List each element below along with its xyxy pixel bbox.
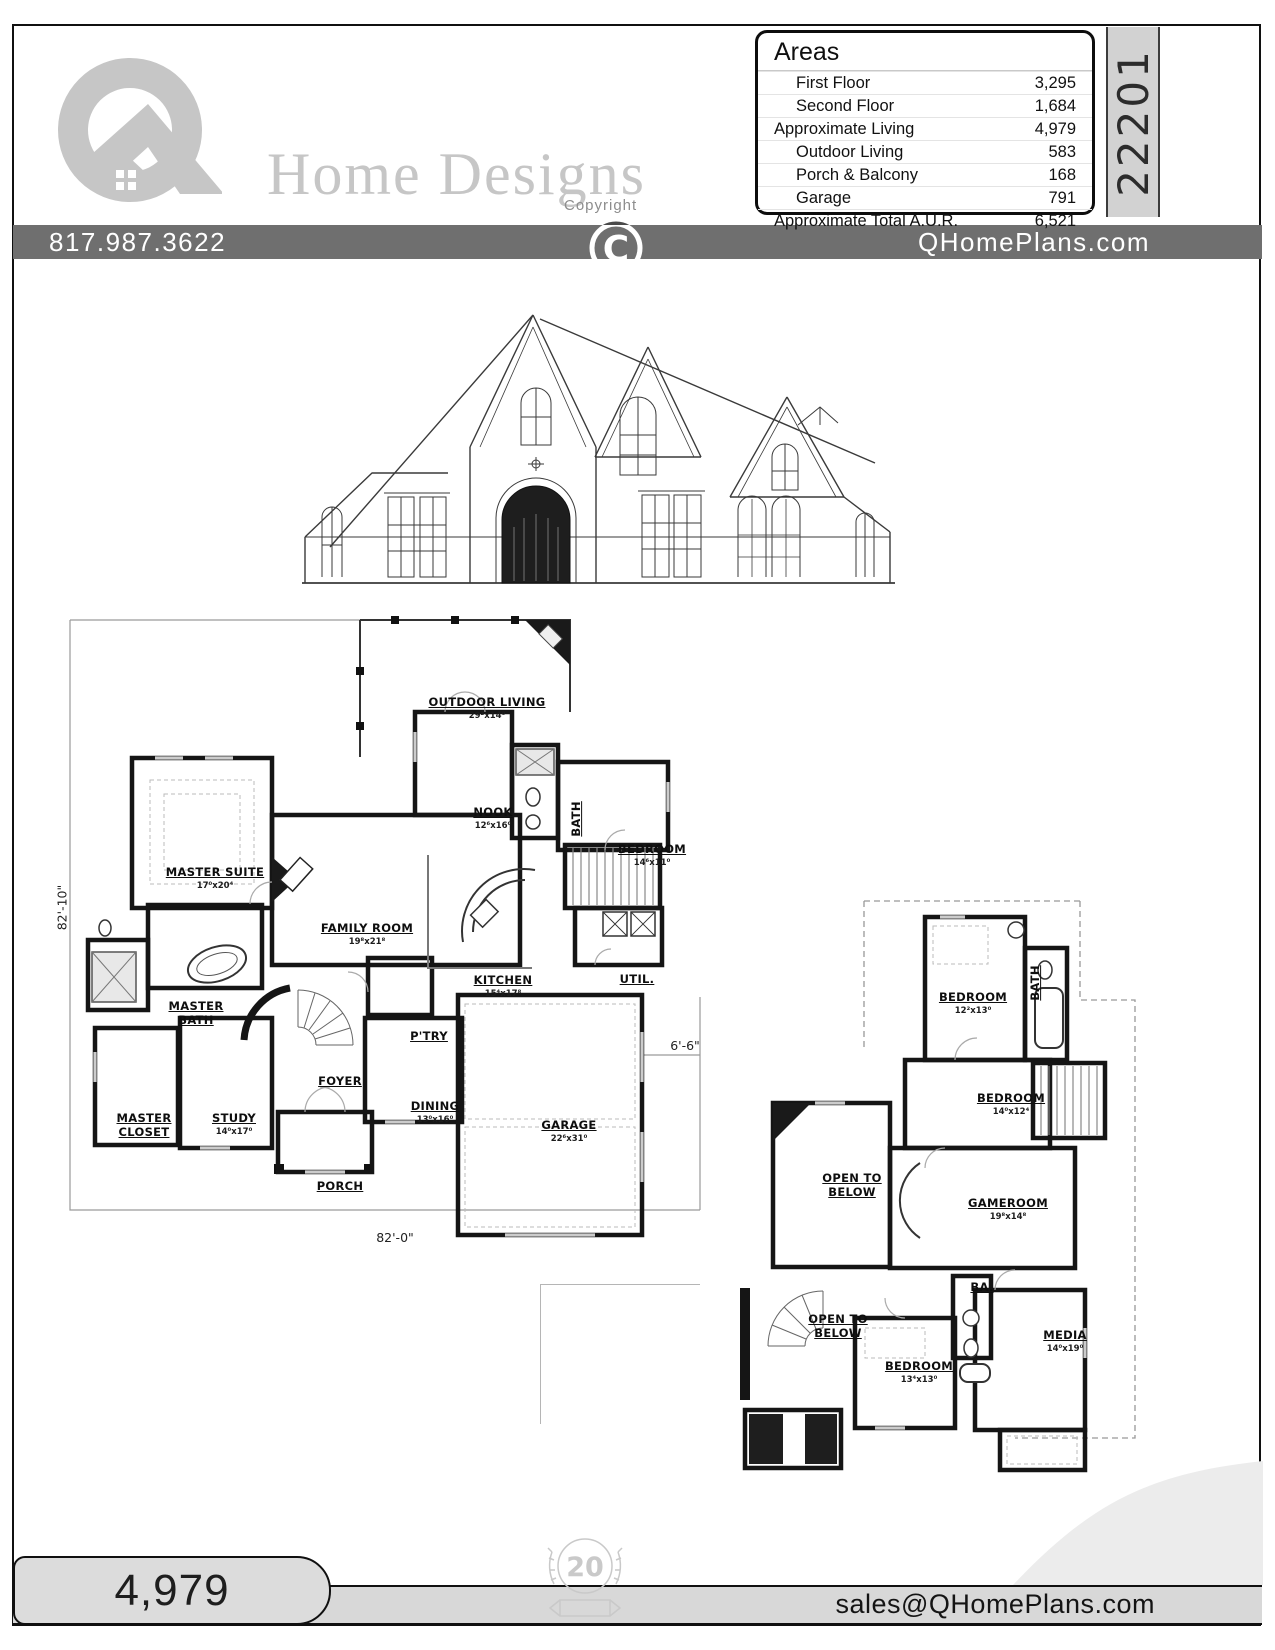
- row-label: Approximate Living: [774, 120, 914, 139]
- room-dimension: 29²x14⁰: [417, 711, 557, 721]
- second-floor-plan: [715, 848, 1175, 1496]
- room-label: BATH: [570, 794, 584, 844]
- row-label: Porch & Balcony: [774, 166, 918, 185]
- room-label: STUDY 14⁰x17⁰: [174, 1112, 294, 1137]
- room-label: OUTDOOR LIVING 29²x14⁰: [417, 696, 557, 721]
- room-label: FAMILY ROOM 19⁸x21⁸: [307, 922, 427, 947]
- room-dimension: 22⁶x31⁰: [509, 1134, 629, 1144]
- dimension-label-side: 6'-6": [650, 1038, 720, 1053]
- room-label: OPEN TO BELOW: [798, 1313, 878, 1341]
- anniversary-badge-icon: 20: [540, 1526, 630, 1634]
- badge-number: 20: [566, 1552, 604, 1583]
- row-label: First Floor: [774, 74, 870, 93]
- row-value: 583: [1048, 143, 1076, 162]
- room-label: MASTER SUITE 17⁰x20⁴: [155, 866, 275, 891]
- room-label: BEDROOM 13⁴x13⁰: [859, 1360, 979, 1385]
- room-dimension: 13⁰x16⁰: [375, 1115, 495, 1125]
- room-label: P'TRY: [369, 1030, 489, 1044]
- room-label: BEDROOM 14⁶x11⁰: [592, 843, 712, 868]
- areas-row: Approximate Total A.U.R. 6,521: [758, 209, 1092, 232]
- room-label: MASTER CLOSET: [109, 1112, 179, 1140]
- email-address: sales@QHomePlans.com: [815, 1589, 1155, 1620]
- room-dimension: 19⁸x21⁸: [307, 937, 427, 947]
- total-sqft: 4,979: [114, 1566, 229, 1616]
- room-label: MEDIA 14⁰x19⁰: [1005, 1329, 1125, 1354]
- areas-row: Outdoor Living 583: [758, 140, 1092, 163]
- elevation-drawing: [290, 285, 910, 595]
- room-label: DINING 13⁰x16⁰: [375, 1100, 495, 1125]
- room-dimension: 14⁰x12⁴: [951, 1107, 1071, 1117]
- room-label: BEDROOM 14⁰x12⁴: [951, 1092, 1071, 1117]
- row-value: 4,979: [1035, 120, 1076, 139]
- room-dimension: 19⁸x14⁸: [948, 1212, 1068, 1222]
- areas-row: Porch & Balcony 168: [758, 163, 1092, 186]
- room-dimension: 15⁴x17⁸: [443, 989, 563, 999]
- room-label: NOOK 12⁶x16⁰: [433, 806, 553, 831]
- row-value: 3,295: [1035, 74, 1076, 93]
- row-value: 6,521: [1035, 212, 1076, 231]
- row-label: Approximate Total A.U.R.: [774, 212, 958, 231]
- row-value: 791: [1048, 189, 1076, 208]
- q-home-logo-icon: [52, 52, 222, 217]
- plan-number-strip: 22201: [1106, 27, 1160, 217]
- room-dimension: 12²x13⁰: [913, 1006, 1033, 1016]
- room-dimension: 17⁰x20⁴: [155, 881, 275, 891]
- areas-row: Approximate Living 4,979: [758, 117, 1092, 140]
- leader-line: [540, 1284, 700, 1285]
- plan-number: 22201: [1109, 48, 1158, 197]
- dimension-label-left: 82'-10": [55, 848, 70, 968]
- areas-row: Second Floor 1,684: [758, 94, 1092, 117]
- plan-sheet: Home Designs Copyright Areas First Floor…: [0, 0, 1275, 1650]
- room-dimension: 14⁰x17⁰: [174, 1127, 294, 1137]
- row-label: Garage: [774, 189, 851, 208]
- row-label: Second Floor: [774, 97, 894, 116]
- areas-table: Areas First Floor 3,295 Second Floor 1,6…: [755, 30, 1095, 215]
- svg-text:C: C: [603, 229, 629, 270]
- dimension-label-bottom: 82'-0": [350, 1230, 440, 1245]
- phone-number: 817.987.3622: [49, 227, 226, 258]
- areas-row: Garage 791: [758, 186, 1092, 209]
- row-label: Outdoor Living: [774, 143, 903, 162]
- room-label: MASTER BATH: [161, 1000, 231, 1028]
- room-label: FOYER: [280, 1075, 400, 1089]
- room-label: GAMEROOM 19⁸x14⁸: [948, 1197, 1068, 1222]
- room-label: BA.: [952, 1281, 1012, 1295]
- areas-title: Areas: [758, 33, 1092, 71]
- leader-line: [540, 1284, 541, 1424]
- brand-logo: Home Designs: [52, 52, 612, 217]
- room-dimension: 13⁴x13⁰: [859, 1375, 979, 1385]
- room-label: PORCH: [280, 1180, 400, 1194]
- room-label: KITCHEN 15⁴x17⁸: [443, 974, 563, 999]
- room-dimension: 14⁶x11⁰: [592, 858, 712, 868]
- room-label: OPEN TO BELOW: [812, 1172, 892, 1200]
- room-label: GARAGE 22⁶x31⁰: [509, 1119, 629, 1144]
- areas-row: First Floor 3,295: [758, 71, 1092, 94]
- room-label: BATH: [1029, 958, 1043, 1008]
- sqft-tab: 4,979: [13, 1556, 331, 1625]
- room-label: BEDROOM 12²x13⁰: [913, 991, 1033, 1016]
- room-label: UTIL.: [577, 973, 697, 987]
- copyright-symbol-icon: C C: [578, 208, 654, 284]
- room-dimension: 12⁶x16⁰: [433, 821, 553, 831]
- row-value: 1,684: [1035, 97, 1076, 116]
- row-value: 168: [1048, 166, 1076, 185]
- room-dimension: 14⁰x19⁰: [1005, 1344, 1125, 1354]
